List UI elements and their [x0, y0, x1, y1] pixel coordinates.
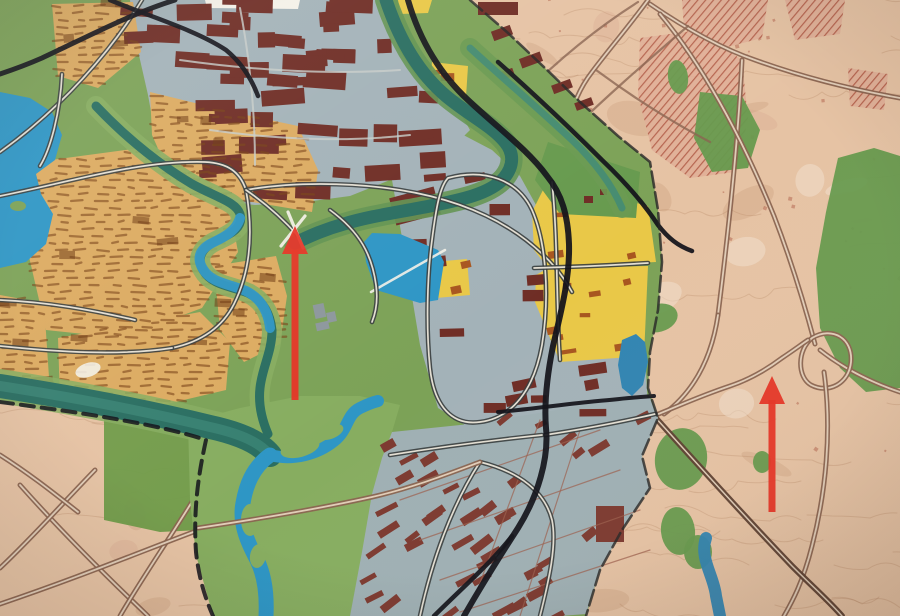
map-photo: [0, 0, 900, 616]
photo-overlay-layer: [0, 0, 900, 616]
map-image: [0, 0, 900, 616]
photo-vignette-overlay: [0, 0, 900, 616]
